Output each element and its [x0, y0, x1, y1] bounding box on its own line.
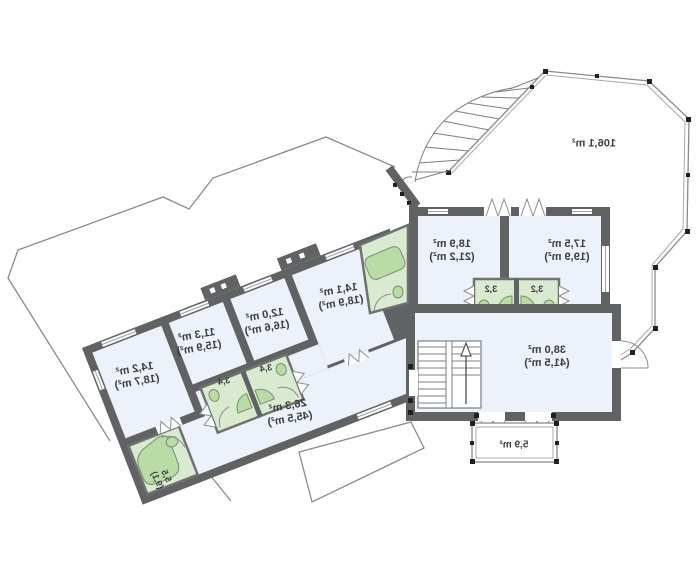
hall-area-label: 38,0 m² (41,5 m²) — [524, 344, 569, 370]
floor-plan: 106,1 m² 18,9 m² (21,2 m²) 17,5 m² (19,9… — [0, 0, 700, 576]
area-line: (41,5 m²) — [524, 357, 569, 370]
area-line: 3,4 — [217, 375, 231, 387]
balcony-area-label: 5,9 m² — [500, 440, 529, 451]
area-line: 3,4 — [259, 362, 273, 374]
area-line: 38,0 m² — [524, 344, 569, 357]
bath-3-2-left-label: 3,2 — [485, 284, 498, 294]
area-line: 5,9 m² — [500, 440, 529, 451]
room-17-5-label: 17,5 m² (19,9 m²) — [544, 238, 589, 264]
area-line: 18,9 m² — [429, 238, 474, 251]
area-line: 106,1 m² — [572, 138, 616, 151]
area-line: (21,2 m²) — [429, 251, 474, 264]
area-line: (19,9 m²) — [544, 251, 589, 264]
door-gap — [612, 341, 621, 368]
area-line: 3,2 — [485, 284, 498, 294]
room-18-9-label: 18,9 m² (21,2 m²) — [429, 238, 474, 264]
door-gap — [409, 370, 418, 396]
bath-3-4-right-label: 3,4 — [259, 362, 273, 374]
area-line: 17,5 m² — [544, 238, 589, 251]
toilet-icon — [393, 286, 403, 298]
terrace-area-label: 106,1 m² — [572, 138, 616, 151]
staircase — [418, 341, 481, 408]
bath-3-2-right-label: 3,2 — [531, 284, 544, 294]
area-line: 3,2 — [531, 284, 544, 294]
bath-3-4-left-label: 3,4 — [217, 375, 231, 387]
